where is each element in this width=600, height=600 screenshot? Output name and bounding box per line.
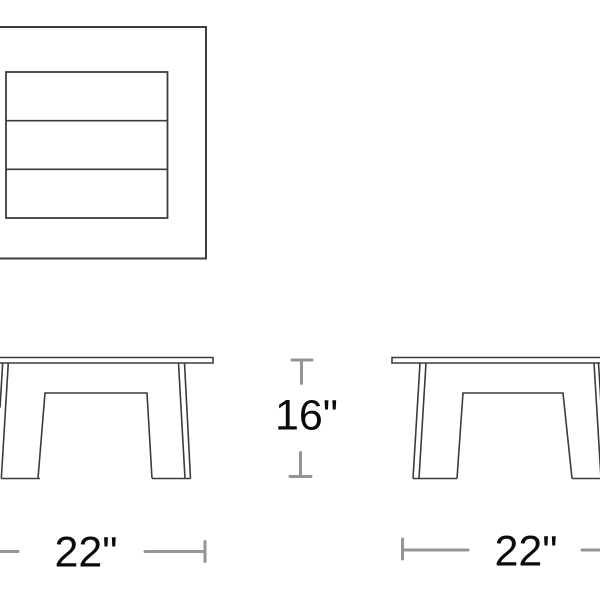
diagram-canvas: 16" 22" 22" bbox=[0, 0, 600, 600]
top-view-tabletop-outline bbox=[6, 72, 168, 218]
front-right-tabletop bbox=[392, 358, 600, 364]
top-view bbox=[0, 27, 206, 259]
front-left-right-leg-edge-2 bbox=[185, 363, 191, 479]
top-view-outer-square bbox=[0, 27, 206, 259]
front-right-left-leg-edge-2 bbox=[419, 363, 426, 479]
front-view-right bbox=[392, 358, 600, 479]
front-left-leg-outer-edge-1 bbox=[0, 363, 3, 408]
front-left-aperture bbox=[38, 393, 152, 479]
front-right-left-leg-edge-1 bbox=[413, 363, 420, 479]
width-left-dimension-label: 22" bbox=[54, 531, 117, 574]
technical-drawing bbox=[0, 0, 600, 600]
front-view-left bbox=[0, 358, 213, 479]
front-right-aperture bbox=[457, 393, 572, 479]
height-dimension-label: 16" bbox=[275, 395, 338, 438]
front-left-tabletop bbox=[0, 358, 213, 364]
front-left-right-leg-edge-1 bbox=[179, 363, 186, 479]
width-right-dimension-label: 22" bbox=[494, 530, 557, 573]
